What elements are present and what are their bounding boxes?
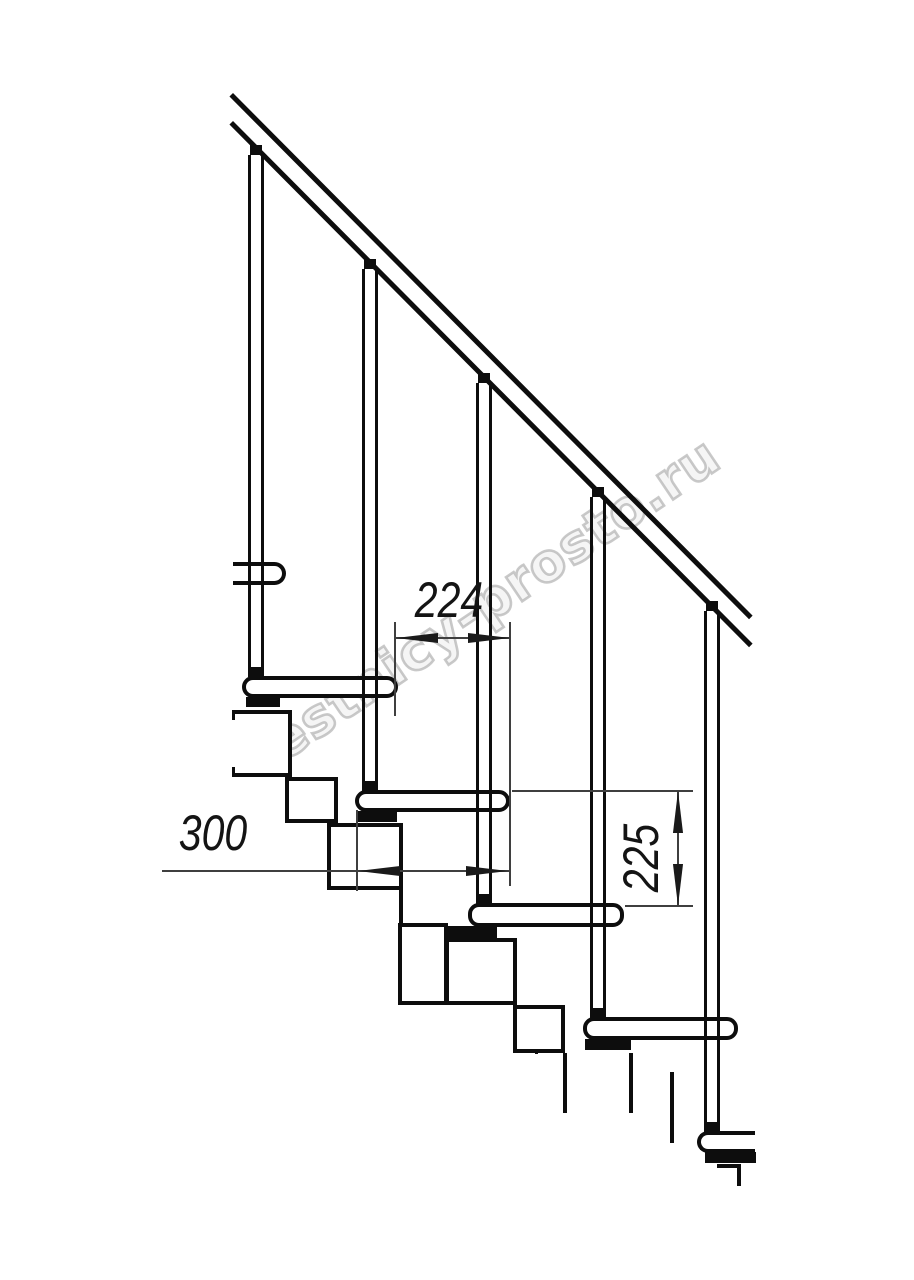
dimension-tread-depth-arrow-left bbox=[358, 865, 400, 877]
dimension-tread-depth-value: 300 bbox=[176, 808, 250, 858]
dimension-going-arrow-right bbox=[468, 632, 510, 644]
dimension-tread-depth-line bbox=[162, 870, 509, 872]
dimensions-layer: 224 300 225 bbox=[0, 0, 914, 1280]
dimension-rise-arrow-up bbox=[672, 791, 684, 833]
dimension-tread-depth-arrow-right bbox=[466, 865, 508, 877]
dimension-tread-depth-ext-left bbox=[356, 810, 358, 891]
dimension-rise-ext-top bbox=[512, 790, 693, 792]
dimension-going-value: 224 bbox=[412, 575, 486, 625]
dimension-rise-value: 225 bbox=[616, 821, 666, 895]
dimension-going-arrow-left bbox=[396, 632, 438, 644]
dimension-going-ext-left bbox=[394, 622, 396, 716]
staircase-drawing: lestnicy-prosto.ru bbox=[0, 0, 914, 1280]
dimension-going-ext-right bbox=[509, 622, 511, 886]
dimension-rise-arrow-down bbox=[672, 864, 684, 906]
dimension-rise-ext-bottom bbox=[625, 905, 693, 907]
